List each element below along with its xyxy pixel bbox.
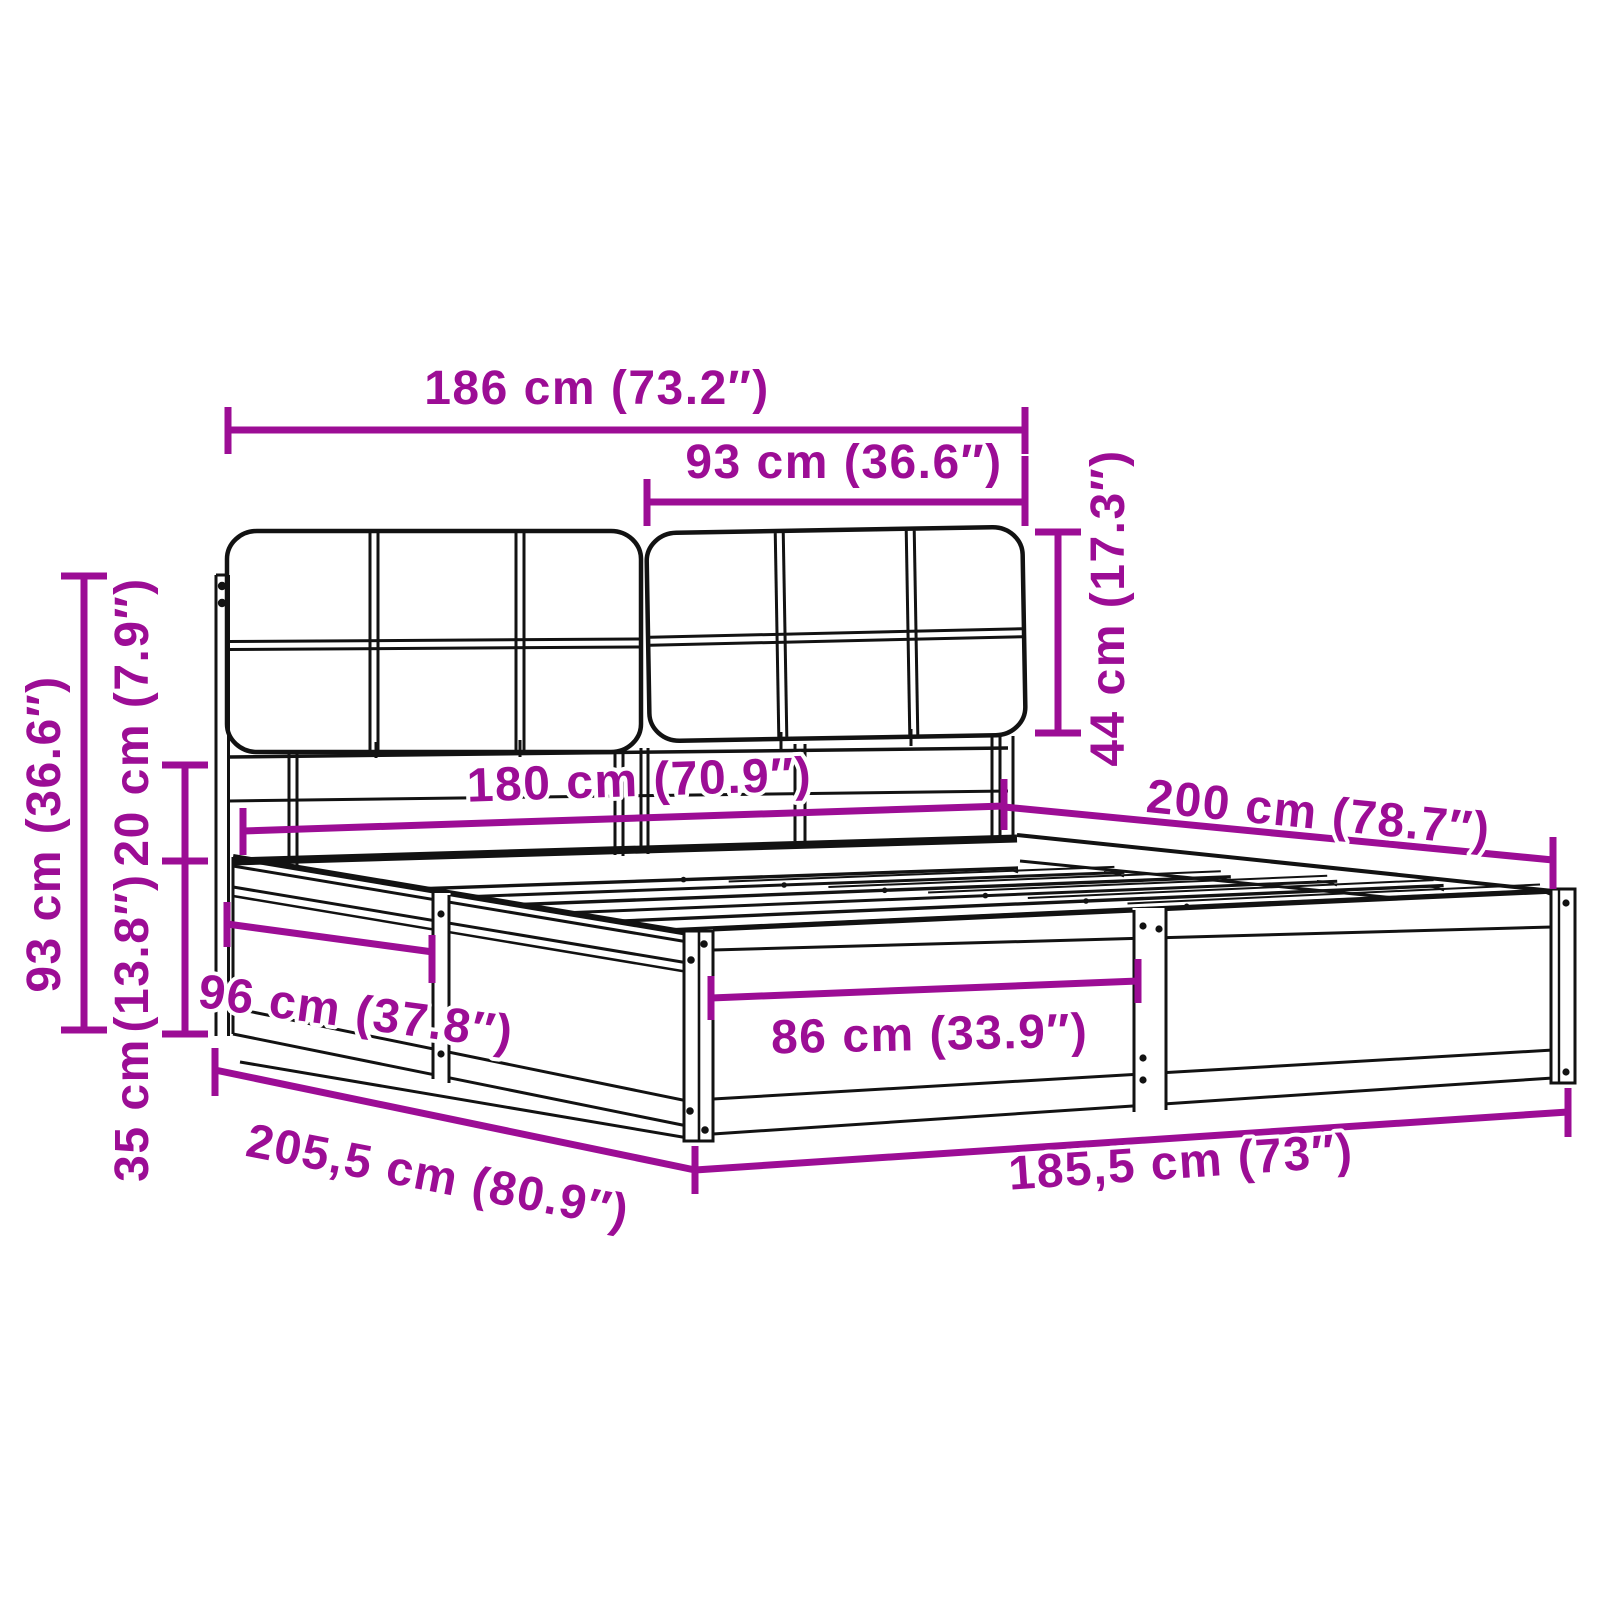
svg-text:93 cm (36.6″): 93 cm (36.6″) xyxy=(18,675,71,992)
svg-text:(13.8″): (13.8″) xyxy=(106,874,159,1033)
svg-text:93 cm (36.6″): 93 cm (36.6″) xyxy=(685,436,1002,489)
svg-text:86 cm (33.9″): 86 cm (33.9″) xyxy=(770,1005,1088,1065)
svg-text:44 cm (17.3″): 44 cm (17.3″) xyxy=(1082,449,1135,766)
svg-text:35 cm: 35 cm xyxy=(106,1038,159,1182)
svg-text:20 cm (7.9″): 20 cm (7.9″) xyxy=(106,577,159,866)
svg-text:186 cm (73.2″): 186 cm (73.2″) xyxy=(424,362,770,415)
